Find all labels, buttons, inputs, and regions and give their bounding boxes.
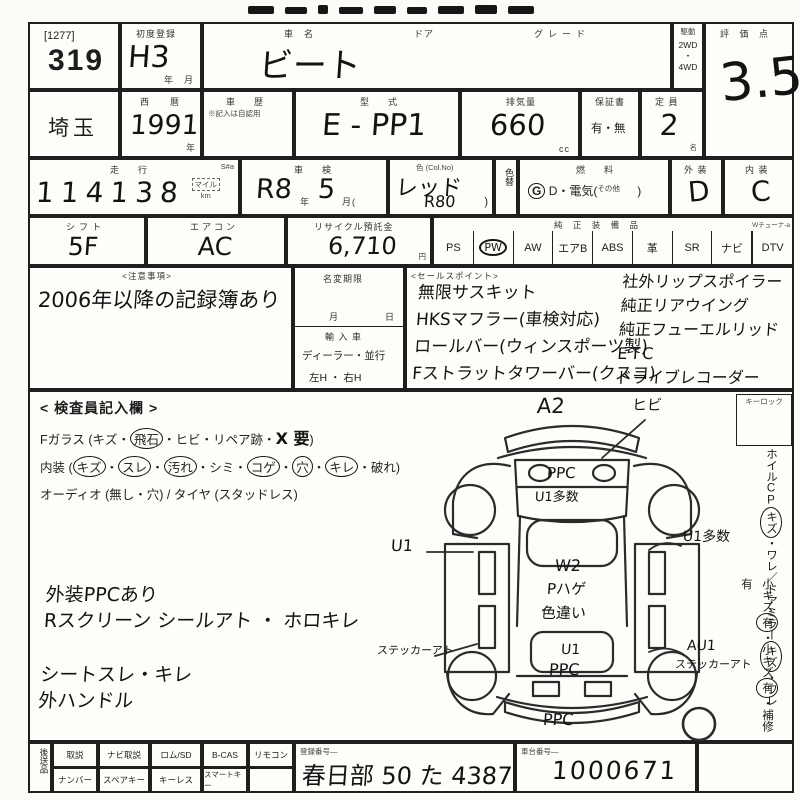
- cell-rom-sd: ロム/SD: [150, 742, 202, 768]
- warranty-cell: 保証書 有・無: [580, 90, 640, 158]
- mileage-unit-box: マイル km: [192, 178, 221, 200]
- capacity-value: 2: [659, 108, 680, 142]
- fuel-content: G D・電気(その他 ): [528, 182, 641, 199]
- glass-handwritten-x-required: X 要: [276, 429, 310, 448]
- glass-prefix: Fガラス (キズ・: [40, 433, 130, 447]
- equip-pw-circled: PW: [479, 239, 507, 256]
- fuel-label: 燃 料: [576, 163, 618, 176]
- history-label: 車 歴: [226, 95, 268, 108]
- inspection-month: 5: [317, 174, 336, 205]
- aircon-cell: エアコン AC: [146, 216, 286, 266]
- warranty-options: 有・無: [591, 120, 626, 136]
- cell-smart-key: スマートキー: [202, 767, 248, 793]
- notes-cell: <注意事項> 2006年以降の記録簿あり: [28, 266, 293, 390]
- cell-keyless: キーレス: [150, 767, 202, 793]
- hand-note: 外装PPCあり: [45, 582, 362, 608]
- equip-airbag: エアB: [552, 231, 592, 264]
- sales-point: ETC: [616, 342, 778, 366]
- recycle-value: 6,710: [327, 232, 398, 260]
- cell-navi-manual: ナビ取説: [98, 742, 150, 768]
- equip-navi: ナビ: [711, 231, 751, 264]
- car-name-cell: 車 名 ドア グレード ビート: [202, 22, 672, 90]
- inspection-era-unit: 年: [300, 195, 310, 208]
- displacement-unit: cc: [559, 144, 570, 154]
- recycle-deposit-cell: リサイクル預託金 6,710 円: [286, 216, 432, 266]
- sidebar-small-kizu: 小キズ: [761, 578, 773, 613]
- displacement-label: 排気量: [506, 95, 536, 108]
- year-label: 西 暦: [140, 95, 185, 108]
- history-note: ※記入は自認用: [208, 108, 261, 119]
- inspector-area: < 検査員記入欄 > Fガラス (キズ・飛石・ヒビ・リペア跡・X 要) 内装 (…: [28, 390, 794, 742]
- import-options: ディーラー・並行: [302, 348, 385, 363]
- score-cell: 評 価 点 3.5: [704, 22, 794, 158]
- drive-4wd: 4WD: [674, 62, 702, 72]
- diagram-trunk-u1: U1: [560, 642, 580, 658]
- sales-point: 純正リアウイング: [620, 294, 782, 318]
- interior-kire-circled: キレ: [325, 456, 358, 477]
- car-damage-diagram: A2 ヒビ PPC U1多数 U1 U1多数 W2 Pハゲ 色違い ステッカーア…: [377, 394, 796, 742]
- drive-separator: ・: [674, 50, 702, 62]
- diagram-hibi-annotation: ヒビ: [631, 394, 662, 415]
- handle-options: 左H ・ 右H: [309, 370, 362, 385]
- sidebar-small-scratch-line: 小キズ有・小キズ有・補修有: [736, 578, 778, 742]
- equipment-row: PS PW AW エアB ABS 革 SR ナビ DTV: [434, 231, 792, 264]
- equip-pw: PW: [473, 231, 513, 264]
- diagram-roof-w2: W2: [554, 556, 581, 575]
- equip-leather: 革: [632, 231, 672, 264]
- capacity-label: 定 員: [655, 95, 679, 108]
- exterior-grade-value: D: [687, 174, 711, 209]
- lot-number: 319: [48, 44, 104, 78]
- grade-label: グレード: [534, 27, 590, 40]
- first-registration-value: H3: [127, 40, 171, 75]
- door-label: ドア: [414, 27, 434, 40]
- model-value: E - PP1: [321, 108, 428, 143]
- model-code-cell: 型 式 E - PP1: [294, 90, 460, 158]
- chassis-number-value: 1000671: [551, 756, 678, 785]
- chassis-number-cell: 車台番号― 1000671: [515, 742, 697, 793]
- registration-number-value: 春日部 50 た 4387: [301, 756, 514, 791]
- sep: ・: [313, 461, 326, 475]
- masthead-cutoff: [248, 2, 534, 14]
- hand-note: シートスレ・キレ: [39, 662, 356, 688]
- interior-grade-value: C: [750, 174, 772, 208]
- car-outline-svg: [377, 394, 796, 742]
- exterior-grade-cell: 外 装 D: [670, 158, 723, 216]
- model-label: 型 式: [360, 95, 402, 108]
- interior-koge-circled: コゲ: [247, 456, 280, 477]
- diagram-trunk-ppc: PPC: [548, 660, 580, 679]
- interior-kizu-circled: キズ: [73, 456, 106, 477]
- inspection-cell: 車 検 R8 年 5 月(: [240, 158, 388, 216]
- items-sent-later-label: 後送品: [28, 742, 52, 793]
- diagram-hood-ppc: PPC: [546, 464, 576, 482]
- capacity-cell: 定 員 2 名: [640, 90, 704, 158]
- interior-yogore-circled: 汚れ: [164, 456, 197, 477]
- first-registration-cell: 初度登録 H3 年 月: [120, 22, 202, 90]
- color-paren: ): [484, 196, 488, 208]
- aircon-value: AC: [197, 232, 233, 261]
- sidebar-ari-circled-2: 有: [756, 678, 778, 698]
- year-unit: 年: [186, 141, 196, 154]
- diagram-a2-annotation: A2: [536, 394, 565, 418]
- year-cell: 西 暦 1991 年: [120, 90, 202, 158]
- inspector-hand-notes: 外装PPCあり Rスクリーン シールアト ・ ホロキレ シートスレ・キレ 外ハン…: [37, 582, 362, 714]
- sidebar-ari-circled-1: 有: [756, 613, 778, 633]
- prefecture-value: 埼玉: [48, 112, 98, 142]
- registration-number-cell: 登録番号― 春日部 50 た 4387: [294, 742, 515, 793]
- displacement-cell: 排気量 660 cc: [460, 90, 580, 158]
- sidebar-small-kizu-2: ・小キズ: [761, 632, 773, 678]
- cell-number-plate: ナンバー: [52, 767, 98, 793]
- prefecture-cell: 埼玉: [28, 90, 120, 158]
- inspector-block: < 検査員記入欄 > Fガラス (キズ・飛石・ヒビ・リペア跡・X 要) 内装 (…: [40, 398, 400, 510]
- cell-spare-key: スペアキー: [98, 767, 150, 793]
- interior-ana-circled: 穴: [292, 456, 313, 477]
- inspection-era: R8: [255, 174, 293, 205]
- interior-grade-cell: 内 装 C: [723, 158, 794, 216]
- first-registration-unit: 年 月: [164, 73, 194, 86]
- sales-points-cell: <セールスポイント> 無限サスキット HKSマフラー(車検対応) ロールバー(ウ…: [405, 266, 794, 390]
- history-cell: 車 歴 ※記入は自認用: [202, 90, 294, 158]
- diagram-left-sticker-mark: ステッカーアト: [376, 642, 454, 658]
- mileage-s-mark: S#a: [221, 162, 234, 171]
- cell-remote: リモコン: [248, 742, 294, 768]
- mileage-value: 114138: [35, 176, 186, 209]
- hand-note: 外ハンドル: [37, 688, 354, 714]
- sales-point: 社外リップスポイラー: [622, 270, 784, 294]
- mileage-unit-km: km: [192, 191, 221, 200]
- fuel-cell: 燃 料 G D・電気(その他 ): [518, 158, 670, 216]
- score-value: 3.5: [717, 46, 800, 114]
- sales-point: 純正フューエルリッド: [618, 318, 780, 342]
- diagram-left-u1: U1: [390, 536, 413, 555]
- diagram-right-u1-many: U1多数: [682, 526, 731, 546]
- glass-close: ): [309, 433, 313, 447]
- interior-sure-circled: スレ: [118, 456, 151, 477]
- notes-handwritten: 2006年以降の記録簿あり: [37, 284, 282, 314]
- shift-cell: シフト 5F: [28, 216, 146, 266]
- year-value: 1991: [129, 110, 200, 141]
- name-change-day: 日: [385, 310, 395, 323]
- recycle-unit: 円: [419, 251, 427, 262]
- fuel-other-label: その他: [597, 184, 620, 193]
- diagram-hood-u1-many: U1多数: [534, 486, 579, 505]
- equip-sr: SR: [672, 231, 712, 264]
- first-registration-label: 初度登録: [136, 27, 176, 40]
- interior-condition-line: 内装 (キズ・スレ・汚れ・シミ・コゲ・穴・キレ・破れ): [40, 456, 400, 477]
- name-change-cell: 名変期限 月 日 輸 入 車 ディーラー・並行 左H ・ 右H: [293, 266, 405, 390]
- lot-number-cell: [1277] 319: [28, 22, 120, 90]
- auction-sheet: [1277] 319 初度登録 H3 年 月 車 名 ドア グレード ビート 駆…: [0, 0, 800, 800]
- color-number: R80: [423, 192, 456, 211]
- cell-empty: [248, 767, 294, 793]
- sales-points-right-column: 社外リップスポイラー 純正リアウイング 純正フューエルリッド ETC ドライブレ…: [615, 270, 783, 390]
- sep: ・: [151, 461, 164, 475]
- equip-dtv: DTV: [751, 231, 792, 264]
- glass-stonechip-circled: 飛石: [130, 428, 163, 449]
- drive-label: 駆動: [674, 26, 702, 37]
- sep: ・シミ・: [197, 461, 247, 475]
- glass-condition-line: Fガラス (キズ・飛石・ヒビ・リペア跡・X 要): [40, 425, 400, 449]
- interior-prefix: 内装 (: [40, 461, 73, 475]
- warranty-label: 保証書: [595, 95, 625, 108]
- keylock-box: キーロック: [736, 394, 792, 446]
- name-change-label: 名変期限: [323, 272, 363, 285]
- color-cell: 色 (Col.No) レッド R80 ): [388, 158, 494, 216]
- hand-note: Rスクリーン シールアト ・ ホロキレ: [43, 608, 360, 634]
- bottom-empty-cell: [697, 742, 794, 793]
- fuel-options: D・電気(: [549, 184, 598, 198]
- equip-aw: AW: [513, 231, 553, 264]
- displacement-value: 660: [489, 108, 547, 142]
- name-change-month: 月: [329, 310, 339, 323]
- lot-bracket: [1277]: [44, 30, 75, 42]
- diagram-right-au1: AU1: [686, 638, 716, 654]
- audio-tire-line: オーディオ (無し・穴) / タイヤ (スタッドレス): [40, 484, 400, 503]
- cell-bcas: B-CAS: [202, 742, 248, 768]
- import-label: 輸 入 車: [325, 330, 362, 343]
- drive-2wd: 2WD: [674, 40, 702, 50]
- equip-abs: ABS: [592, 231, 632, 264]
- notes-label: <注意事項>: [122, 270, 172, 282]
- mileage-cell: 走 行 S#a 114138 マイル km: [28, 158, 240, 216]
- equipment-cell: 純 正 装 備 品 Wチューナ-a PS PW AW エアB ABS 革 SR …: [432, 216, 794, 266]
- diagram-rear-ppc: PPC: [542, 710, 574, 729]
- cell-manual: 取説: [52, 742, 98, 768]
- equipment-note: Wチューナ-a: [752, 219, 790, 229]
- fuel-close-paren: ): [637, 184, 641, 198]
- mileage-unit-mile: マイル: [192, 178, 221, 191]
- sidebar-wheelcap: ホイルCP: [765, 448, 777, 507]
- name-change-divider: [295, 326, 403, 327]
- mileage-label: 走 行: [110, 163, 152, 176]
- inspector-title: < 検査員記入欄 >: [40, 398, 400, 418]
- score-label: 評 価 点: [720, 27, 772, 40]
- keylock-label: キーロック: [737, 396, 791, 407]
- car-name-value: ビート: [257, 38, 362, 87]
- diagram-roof-color-diff: 色違い: [540, 602, 586, 623]
- sep: ・: [280, 461, 293, 475]
- sep: ・: [106, 461, 119, 475]
- inspection-month-unit: 月(: [342, 195, 356, 208]
- equipment-label: 純 正 装 備 品: [554, 219, 642, 231]
- capacity-unit: 名: [690, 142, 698, 153]
- drive-type-cell: 駆動 2WD ・ 4WD: [672, 22, 704, 90]
- color-change-cell: 色替: [494, 158, 518, 216]
- glass-mid: ・ヒビ・リペア跡・: [163, 433, 276, 447]
- shift-value: 5F: [67, 232, 99, 261]
- sidebar-wheelcap-kizu-circled: キズ: [760, 507, 782, 538]
- fuel-gasoline-circled: G: [528, 183, 545, 199]
- sales-point: ドライブレコーダー: [615, 366, 777, 390]
- equip-ps: PS: [434, 231, 473, 264]
- diagram-roof-paint-peel: Pハゲ: [546, 578, 587, 599]
